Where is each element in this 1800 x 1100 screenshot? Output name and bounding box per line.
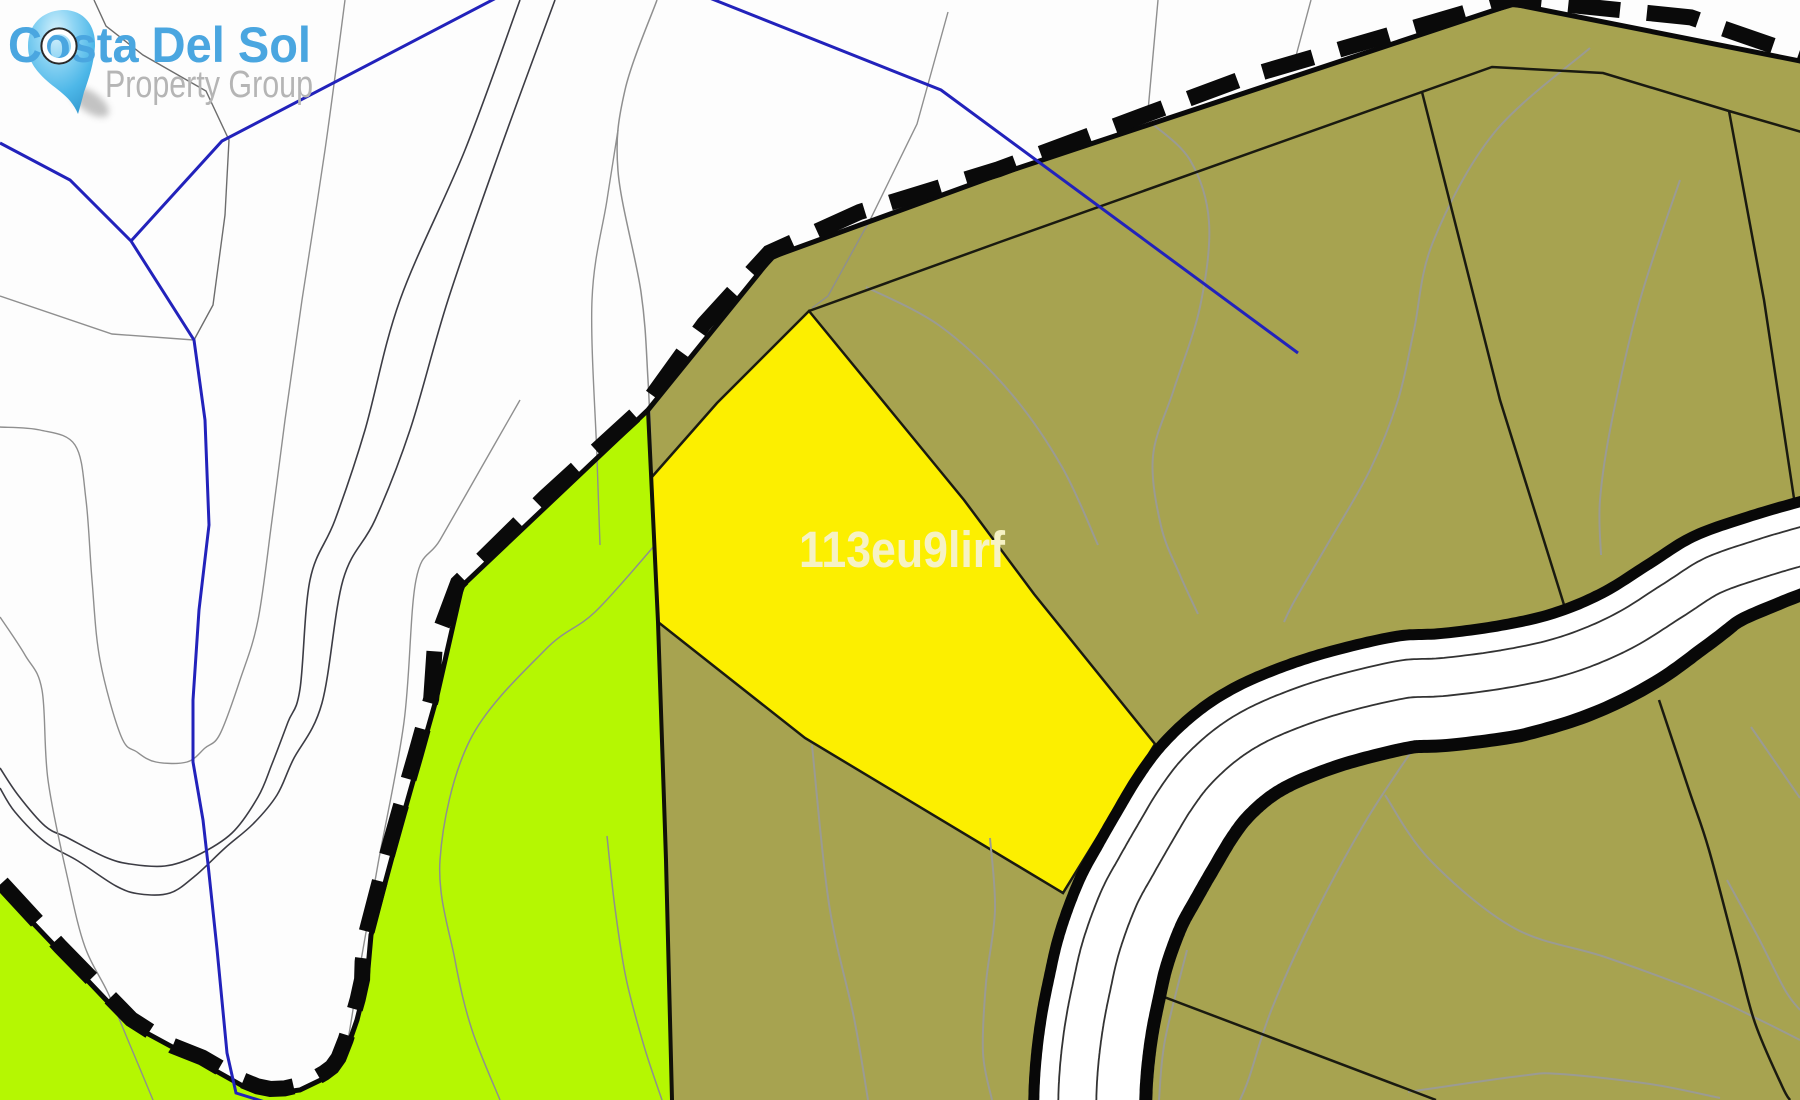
svg-text:113eu9lirf: 113eu9lirf: [799, 521, 1006, 578]
svg-text:Property Group: Property Group: [105, 64, 313, 106]
